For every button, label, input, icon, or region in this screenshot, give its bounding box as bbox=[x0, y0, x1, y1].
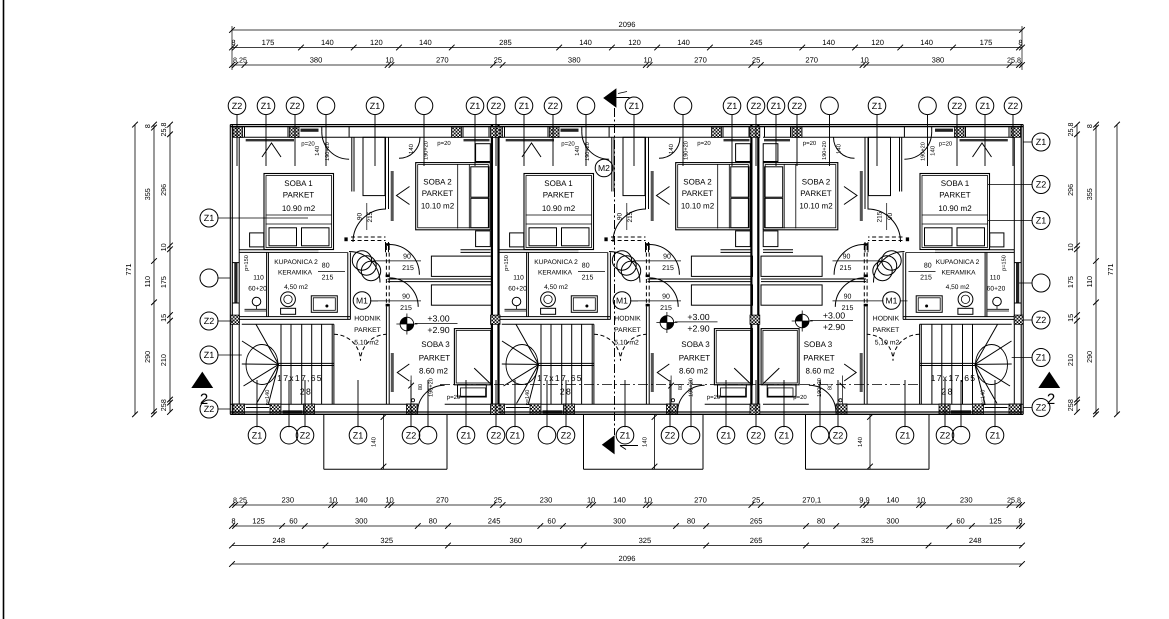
svg-text:SOBA 1: SOBA 1 bbox=[941, 179, 970, 188]
svg-text:190+20: 190+20 bbox=[684, 141, 690, 160]
svg-text:215: 215 bbox=[840, 265, 852, 272]
svg-text:215: 215 bbox=[627, 211, 634, 222]
svg-text:215: 215 bbox=[322, 274, 334, 281]
svg-text:Z2: Z2 bbox=[204, 316, 215, 326]
svg-text:KUPAONICA 2: KUPAONICA 2 bbox=[274, 259, 318, 266]
svg-text:PARKET: PARKET bbox=[682, 189, 714, 198]
svg-text:p=20: p=20 bbox=[561, 141, 575, 148]
svg-text:KUPAONICA 2: KUPAONICA 2 bbox=[534, 259, 578, 266]
svg-text:771: 771 bbox=[124, 264, 133, 276]
svg-text:60+20: 60+20 bbox=[987, 286, 1006, 293]
svg-text:Z1: Z1 bbox=[779, 430, 790, 440]
svg-text:Z2: Z2 bbox=[751, 430, 762, 440]
svg-text:PARKET: PARKET bbox=[614, 327, 641, 334]
svg-text:190+20: 190+20 bbox=[689, 378, 695, 397]
svg-text:325: 325 bbox=[639, 536, 652, 545]
svg-text:90: 90 bbox=[843, 254, 851, 261]
svg-text:Z2: Z2 bbox=[548, 101, 559, 111]
svg-text:17x17,65: 17x17,65 bbox=[537, 373, 583, 383]
svg-text:5,10 m2: 5,10 m2 bbox=[614, 340, 639, 347]
svg-text:+3.00: +3.00 bbox=[427, 313, 449, 323]
svg-text:Z1: Z1 bbox=[727, 101, 738, 111]
svg-text:140: 140 bbox=[321, 38, 334, 47]
svg-text:+2.90: +2.90 bbox=[823, 322, 845, 332]
svg-text:PARKET: PARKET bbox=[873, 327, 900, 334]
svg-text:Z2: Z2 bbox=[232, 101, 243, 111]
svg-text:15: 15 bbox=[159, 314, 168, 322]
svg-text:8: 8 bbox=[159, 399, 168, 403]
svg-text:25: 25 bbox=[752, 496, 760, 505]
svg-text:p=150: p=150 bbox=[504, 255, 510, 271]
svg-text:270: 270 bbox=[436, 496, 449, 505]
svg-text:PARKET: PARKET bbox=[419, 354, 451, 363]
svg-text:8: 8 bbox=[231, 38, 235, 47]
svg-text:90: 90 bbox=[616, 213, 623, 221]
svg-text:Z1: Z1 bbox=[252, 430, 263, 440]
svg-text:60+20: 60+20 bbox=[508, 286, 527, 293]
svg-text:140: 140 bbox=[836, 143, 843, 154]
svg-text:8.60 m2: 8.60 m2 bbox=[806, 367, 835, 376]
svg-text:140: 140 bbox=[857, 436, 864, 447]
svg-text:90: 90 bbox=[662, 294, 670, 301]
svg-text:+3.00: +3.00 bbox=[823, 310, 845, 320]
svg-text:60+20: 60+20 bbox=[248, 286, 267, 293]
svg-text:25: 25 bbox=[752, 56, 760, 65]
svg-text:9,9: 9,9 bbox=[859, 496, 870, 505]
svg-text:M1: M1 bbox=[356, 296, 368, 306]
svg-text:8.60 m2: 8.60 m2 bbox=[679, 367, 708, 376]
svg-text:Z2: Z2 bbox=[1036, 403, 1047, 413]
svg-text:285: 285 bbox=[499, 38, 512, 47]
svg-text:M2: M2 bbox=[598, 163, 610, 173]
svg-text:10.90 m2: 10.90 m2 bbox=[282, 204, 316, 213]
svg-text:5,10 m2: 5,10 m2 bbox=[875, 340, 900, 347]
svg-text:10.90 m2: 10.90 m2 bbox=[938, 204, 972, 213]
svg-text:215: 215 bbox=[662, 265, 674, 272]
svg-text:PARKET: PARKET bbox=[679, 354, 711, 363]
svg-text:80: 80 bbox=[678, 384, 684, 390]
svg-text:80: 80 bbox=[817, 517, 825, 526]
svg-text:325: 325 bbox=[380, 536, 393, 545]
svg-text:Z2: Z2 bbox=[1036, 315, 1047, 325]
svg-text:Z1: Z1 bbox=[721, 430, 732, 440]
svg-text:10.10 m2: 10.10 m2 bbox=[421, 202, 455, 211]
svg-text:140: 140 bbox=[574, 145, 581, 156]
svg-text:80: 80 bbox=[828, 384, 834, 390]
svg-text:Z2: Z2 bbox=[952, 101, 963, 111]
svg-text:140: 140 bbox=[613, 496, 626, 505]
svg-text:28: 28 bbox=[300, 387, 312, 397]
svg-text:230: 230 bbox=[540, 496, 553, 505]
svg-text:60: 60 bbox=[289, 517, 297, 526]
svg-text:120: 120 bbox=[871, 38, 884, 47]
svg-text:120: 120 bbox=[370, 38, 383, 47]
svg-text:Z2: Z2 bbox=[833, 430, 844, 440]
svg-text:245: 245 bbox=[488, 517, 501, 526]
svg-text:215: 215 bbox=[402, 265, 414, 272]
svg-text:Z1: Z1 bbox=[370, 101, 381, 111]
svg-text:10: 10 bbox=[587, 496, 595, 505]
svg-text:PARKET: PARKET bbox=[422, 189, 454, 198]
svg-text:Z2: Z2 bbox=[940, 430, 951, 440]
svg-text:355: 355 bbox=[1085, 188, 1094, 200]
svg-text:125: 125 bbox=[989, 517, 1002, 526]
svg-text:140: 140 bbox=[822, 38, 835, 47]
svg-text:25,8: 25,8 bbox=[1066, 122, 1075, 136]
svg-text:80: 80 bbox=[418, 384, 424, 390]
svg-text:Z1: Z1 bbox=[1036, 216, 1047, 226]
svg-text:Z1: Z1 bbox=[629, 101, 640, 111]
svg-text:Z1: Z1 bbox=[872, 101, 883, 111]
svg-text:Z2: Z2 bbox=[665, 430, 676, 440]
svg-text:215: 215 bbox=[367, 211, 374, 222]
svg-text:p=20: p=20 bbox=[939, 141, 953, 148]
svg-text:355: 355 bbox=[143, 188, 152, 200]
svg-text:140: 140 bbox=[419, 38, 432, 47]
svg-text:p=20: p=20 bbox=[803, 140, 817, 147]
svg-text:25: 25 bbox=[494, 496, 502, 505]
svg-text:10.10 m2: 10.10 m2 bbox=[681, 202, 715, 211]
svg-text:Z2: Z2 bbox=[561, 430, 572, 440]
svg-text:Z2: Z2 bbox=[491, 430, 502, 440]
svg-text:140: 140 bbox=[371, 436, 378, 447]
svg-text:380: 380 bbox=[568, 56, 581, 65]
svg-text:80: 80 bbox=[687, 517, 695, 526]
svg-text:Z2: Z2 bbox=[1036, 180, 1047, 190]
svg-text:Z1: Z1 bbox=[1036, 137, 1047, 147]
svg-text:10.90 m2: 10.90 m2 bbox=[542, 204, 576, 213]
svg-text:Z2: Z2 bbox=[204, 404, 215, 414]
svg-text:25,8: 25,8 bbox=[159, 122, 168, 136]
svg-text:8: 8 bbox=[231, 517, 235, 526]
svg-text:140: 140 bbox=[668, 143, 675, 154]
svg-text:SOBA 3: SOBA 3 bbox=[681, 340, 710, 349]
svg-text:4,50 m2: 4,50 m2 bbox=[284, 284, 308, 291]
svg-text:125: 125 bbox=[252, 517, 265, 526]
svg-text:SOBA 1: SOBA 1 bbox=[284, 179, 313, 188]
svg-text:10: 10 bbox=[385, 496, 393, 505]
svg-text:SOBA 3: SOBA 3 bbox=[804, 340, 833, 349]
svg-text:Z2: Z2 bbox=[491, 101, 502, 111]
svg-text:2096: 2096 bbox=[619, 20, 636, 29]
svg-text:296: 296 bbox=[1066, 184, 1075, 196]
svg-text:+3.00: +3.00 bbox=[687, 312, 709, 322]
svg-text:190+20: 190+20 bbox=[920, 142, 926, 161]
svg-text:p=20: p=20 bbox=[301, 141, 315, 148]
svg-text:80: 80 bbox=[924, 263, 932, 270]
svg-text:Z1: Z1 bbox=[204, 350, 215, 360]
svg-text:110: 110 bbox=[253, 275, 264, 282]
svg-text:Z1: Z1 bbox=[261, 101, 272, 111]
svg-text:265: 265 bbox=[750, 517, 763, 526]
svg-text:p=20: p=20 bbox=[793, 394, 807, 401]
svg-text:PARKET: PARKET bbox=[803, 354, 835, 363]
svg-text:Z1: Z1 bbox=[470, 101, 481, 111]
svg-text:360: 360 bbox=[509, 536, 522, 545]
svg-text:p=150: p=150 bbox=[1002, 255, 1008, 271]
svg-text:140: 140 bbox=[579, 38, 592, 47]
svg-text:215: 215 bbox=[920, 274, 932, 281]
svg-text:140: 140 bbox=[408, 143, 415, 154]
svg-text:Z1: Z1 bbox=[510, 430, 521, 440]
svg-text:Z1: Z1 bbox=[620, 430, 631, 440]
svg-text:248: 248 bbox=[272, 536, 285, 545]
svg-text:SOBA 1: SOBA 1 bbox=[544, 179, 573, 188]
svg-text:190+20: 190+20 bbox=[822, 141, 828, 160]
svg-text:25,8: 25,8 bbox=[1007, 56, 1021, 65]
svg-text:175: 175 bbox=[1066, 276, 1075, 288]
svg-text:270,1: 270,1 bbox=[802, 496, 821, 505]
svg-text:4,50 m2: 4,50 m2 bbox=[544, 284, 568, 291]
svg-text:HODNIK: HODNIK bbox=[354, 316, 381, 323]
svg-text:215: 215 bbox=[842, 305, 854, 312]
svg-text:90: 90 bbox=[844, 294, 852, 301]
svg-text:175: 175 bbox=[262, 38, 275, 47]
svg-text:248: 248 bbox=[969, 536, 982, 545]
svg-text:210: 210 bbox=[159, 354, 168, 366]
svg-text:25: 25 bbox=[494, 56, 502, 65]
svg-text:PARKET: PARKET bbox=[354, 327, 381, 334]
svg-text:Z2: Z2 bbox=[300, 430, 311, 440]
svg-text:290: 290 bbox=[1085, 351, 1094, 363]
svg-text:300: 300 bbox=[886, 517, 899, 526]
svg-text:300: 300 bbox=[613, 517, 626, 526]
svg-text:Z2: Z2 bbox=[792, 101, 803, 111]
svg-text:10: 10 bbox=[159, 243, 168, 251]
svg-text:KERAMIKA: KERAMIKA bbox=[278, 270, 313, 277]
svg-text:296: 296 bbox=[159, 184, 168, 196]
svg-text:10.10 m2: 10.10 m2 bbox=[799, 202, 833, 211]
svg-text:Z1: Z1 bbox=[980, 101, 991, 111]
svg-text:120: 120 bbox=[628, 38, 641, 47]
svg-text:Z1: Z1 bbox=[771, 101, 782, 111]
svg-text:Z1: Z1 bbox=[461, 430, 472, 440]
svg-text:Z1: Z1 bbox=[204, 213, 215, 223]
svg-text:p=140: p=140 bbox=[525, 390, 531, 406]
svg-text:10: 10 bbox=[860, 56, 868, 65]
svg-text:110: 110 bbox=[990, 275, 1001, 282]
svg-text:PARKET: PARKET bbox=[939, 191, 971, 200]
svg-text:Z2: Z2 bbox=[290, 101, 301, 111]
svg-text:25,8: 25,8 bbox=[1007, 496, 1021, 505]
svg-text:10: 10 bbox=[917, 496, 925, 505]
svg-text:+2.90: +2.90 bbox=[687, 323, 709, 333]
svg-text:HODNIK: HODNIK bbox=[873, 316, 900, 323]
svg-text:80: 80 bbox=[582, 263, 590, 270]
svg-text:p=20: p=20 bbox=[697, 140, 711, 147]
svg-text:M1: M1 bbox=[886, 296, 898, 306]
svg-text:140: 140 bbox=[355, 496, 368, 505]
svg-text:215: 215 bbox=[660, 305, 672, 312]
svg-text:KERAMIKA: KERAMIKA bbox=[538, 270, 573, 277]
svg-text:8.60 m2: 8.60 m2 bbox=[419, 367, 448, 376]
svg-text:60: 60 bbox=[956, 517, 964, 526]
svg-text:270: 270 bbox=[694, 496, 707, 505]
svg-text:140: 140 bbox=[677, 38, 690, 47]
svg-text:10: 10 bbox=[644, 56, 652, 65]
svg-text:PARKET: PARKET bbox=[283, 191, 315, 200]
svg-text:265: 265 bbox=[750, 536, 763, 545]
svg-text:5,10 m2: 5,10 m2 bbox=[354, 340, 379, 347]
svg-text:60: 60 bbox=[547, 517, 555, 526]
svg-text:Z2: Z2 bbox=[751, 101, 762, 111]
svg-text:90: 90 bbox=[356, 213, 363, 221]
svg-text:90: 90 bbox=[887, 213, 894, 221]
svg-text:270: 270 bbox=[436, 56, 449, 65]
svg-text:110: 110 bbox=[513, 275, 524, 282]
svg-text:215: 215 bbox=[877, 211, 884, 222]
svg-text:p=140: p=140 bbox=[981, 390, 987, 406]
svg-text:p=150: p=150 bbox=[244, 255, 250, 271]
svg-text:Z1: Z1 bbox=[1036, 353, 1047, 363]
svg-text:140: 140 bbox=[314, 145, 321, 156]
svg-text:p=20: p=20 bbox=[447, 394, 461, 401]
svg-text:140: 140 bbox=[920, 38, 933, 47]
svg-text:17x17,65: 17x17,65 bbox=[277, 373, 323, 383]
svg-text:190+20: 190+20 bbox=[429, 378, 435, 397]
svg-text:KUPAONICA 2: KUPAONICA 2 bbox=[936, 259, 980, 266]
svg-text:+2.90: +2.90 bbox=[427, 325, 449, 335]
svg-text:110: 110 bbox=[143, 276, 152, 287]
svg-text:8: 8 bbox=[1066, 399, 1075, 403]
svg-text:290: 290 bbox=[143, 351, 152, 363]
svg-text:90: 90 bbox=[403, 254, 411, 261]
svg-text:8,25: 8,25 bbox=[233, 56, 247, 65]
svg-text:245: 245 bbox=[750, 38, 763, 47]
svg-text:175: 175 bbox=[159, 276, 168, 288]
svg-text:175: 175 bbox=[980, 38, 993, 47]
svg-text:140: 140 bbox=[930, 145, 937, 156]
svg-text:Z2: Z2 bbox=[1008, 101, 1019, 111]
svg-text:Z1: Z1 bbox=[519, 101, 530, 111]
svg-text:140: 140 bbox=[886, 496, 899, 505]
svg-text:SOBA 3: SOBA 3 bbox=[421, 340, 450, 349]
svg-text:KERAMIKA: KERAMIKA bbox=[941, 270, 976, 277]
svg-text:8: 8 bbox=[1085, 124, 1094, 128]
svg-text:Z1: Z1 bbox=[353, 430, 364, 440]
svg-text:28: 28 bbox=[941, 387, 953, 397]
svg-text:SOBA 2: SOBA 2 bbox=[802, 178, 831, 187]
svg-text:110: 110 bbox=[1085, 276, 1094, 287]
svg-text:2096: 2096 bbox=[619, 554, 636, 563]
svg-text:380: 380 bbox=[310, 56, 323, 65]
svg-text:8: 8 bbox=[1018, 38, 1022, 47]
svg-text:17x17,65: 17x17,65 bbox=[931, 373, 977, 383]
svg-text:80: 80 bbox=[429, 517, 437, 526]
svg-text:PARKET: PARKET bbox=[800, 189, 832, 198]
svg-text:HODNIK: HODNIK bbox=[614, 316, 641, 323]
svg-text:215: 215 bbox=[400, 305, 412, 312]
svg-text:300: 300 bbox=[355, 517, 368, 526]
svg-text:4,50 m2: 4,50 m2 bbox=[946, 284, 970, 291]
svg-text:380: 380 bbox=[932, 56, 945, 65]
svg-text:210: 210 bbox=[1066, 354, 1075, 366]
svg-text:p=20: p=20 bbox=[437, 140, 451, 147]
svg-text:Z2: Z2 bbox=[406, 430, 417, 440]
svg-text:10: 10 bbox=[385, 56, 393, 65]
svg-text:PARKET: PARKET bbox=[543, 191, 575, 200]
svg-text:15: 15 bbox=[1066, 314, 1075, 322]
svg-text:215: 215 bbox=[582, 274, 594, 281]
svg-text:325: 325 bbox=[861, 536, 874, 545]
svg-text:10: 10 bbox=[644, 496, 652, 505]
svg-text:2: 2 bbox=[1047, 391, 1055, 408]
svg-text:140: 140 bbox=[642, 436, 649, 447]
svg-text:80: 80 bbox=[322, 263, 330, 270]
svg-text:SOBA 2: SOBA 2 bbox=[683, 178, 712, 187]
svg-text:Z1: Z1 bbox=[990, 430, 1001, 440]
svg-text:M1: M1 bbox=[616, 296, 628, 306]
svg-text:8,25: 8,25 bbox=[233, 496, 247, 505]
svg-text:230: 230 bbox=[960, 496, 973, 505]
svg-text:p=140: p=140 bbox=[265, 390, 271, 406]
svg-text:25: 25 bbox=[159, 403, 168, 411]
svg-text:8: 8 bbox=[1018, 517, 1022, 526]
svg-text:270: 270 bbox=[694, 56, 707, 65]
svg-text:230: 230 bbox=[281, 496, 294, 505]
svg-text:90: 90 bbox=[402, 294, 410, 301]
svg-text:Z1: Z1 bbox=[900, 430, 911, 440]
svg-text:10: 10 bbox=[1066, 243, 1075, 251]
svg-text:10: 10 bbox=[329, 496, 337, 505]
svg-text:p=20: p=20 bbox=[707, 394, 721, 401]
svg-text:771: 771 bbox=[1106, 264, 1115, 276]
svg-text:270: 270 bbox=[805, 56, 818, 65]
svg-text:25: 25 bbox=[1066, 403, 1075, 411]
svg-text:90: 90 bbox=[663, 254, 671, 261]
svg-text:SOBA 2: SOBA 2 bbox=[423, 178, 452, 187]
svg-text:8: 8 bbox=[143, 124, 152, 128]
